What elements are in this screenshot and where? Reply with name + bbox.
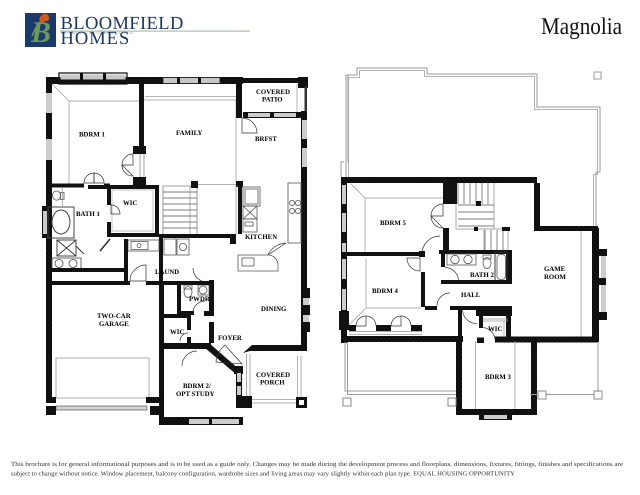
svg-text:WIC: WIC	[488, 326, 502, 333]
svg-text:BATH 2: BATH 2	[470, 272, 494, 279]
svg-text:DINING: DINING	[261, 306, 287, 313]
svg-text:COVERED: COVERED	[256, 372, 290, 379]
svg-text:OPT STUDY: OPT STUDY	[176, 391, 215, 398]
svg-text:BDRM 2/: BDRM 2/	[183, 383, 211, 390]
svg-text:subject to change without noti: subject to change without notice. Window…	[11, 471, 515, 478]
svg-text:BDRM 5: BDRM 5	[380, 220, 406, 227]
svg-text:PORCH: PORCH	[260, 380, 285, 387]
svg-text:PATIO: PATIO	[262, 97, 283, 104]
svg-text:HALL: HALL	[461, 292, 481, 299]
svg-text:BATH 1: BATH 1	[76, 211, 100, 218]
svg-text:GARAGE: GARAGE	[99, 321, 129, 328]
svg-text:FOYER: FOYER	[218, 335, 242, 342]
svg-text:WIC: WIC	[123, 200, 137, 207]
svg-text:HOMES: HOMES	[61, 29, 131, 49]
svg-text:FAMILY: FAMILY	[176, 130, 203, 137]
svg-text:KITCHEN: KITCHEN	[245, 234, 277, 241]
svg-text:BDRM 4: BDRM 4	[372, 288, 398, 295]
svg-text:This brochure is for general i: This brochure is for general information…	[11, 461, 623, 468]
svg-text:BDRM 3: BDRM 3	[485, 374, 511, 381]
svg-text:LAUND: LAUND	[155, 269, 179, 276]
svg-text:WIC: WIC	[170, 329, 184, 336]
svg-text:GAME: GAME	[544, 266, 566, 273]
svg-text:ROOM: ROOM	[544, 274, 566, 281]
svg-text:TWO-CAR: TWO-CAR	[97, 313, 131, 320]
svg-text:BDRM 1: BDRM 1	[79, 132, 105, 139]
svg-text:COVERED: COVERED	[256, 89, 290, 96]
svg-text:PWDR: PWDR	[189, 296, 210, 303]
svg-text:BRFST: BRFST	[255, 136, 277, 143]
svg-text:Magnolia: Magnolia	[541, 14, 622, 40]
